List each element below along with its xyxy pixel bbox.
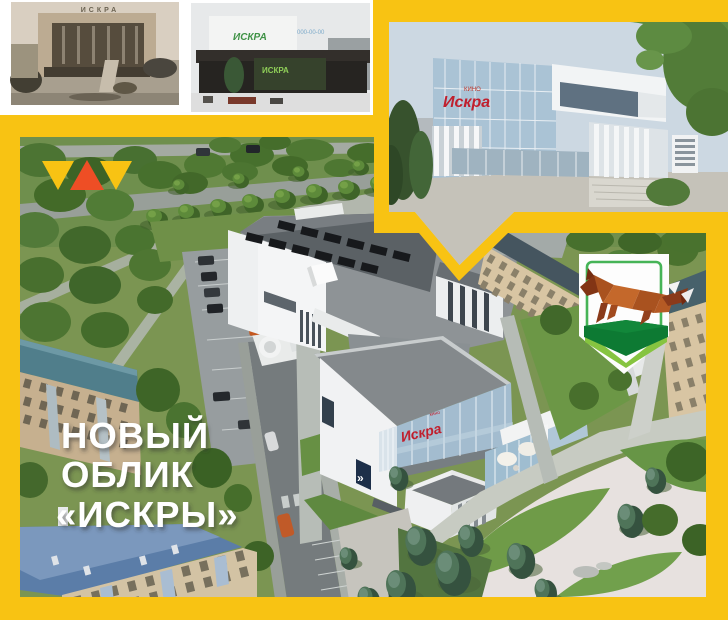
svg-text:ИСКРА: ИСКРА (262, 66, 289, 75)
svg-text:КИНО: КИНО (464, 87, 481, 93)
svg-text:НОВЫЙ: НОВЫЙ (61, 414, 209, 456)
svg-text:»: » (357, 471, 364, 485)
svg-text:«ИСКРЫ»: «ИСКРЫ» (56, 494, 239, 535)
svg-text:000-00-00: 000-00-00 (297, 30, 325, 36)
svg-text:ИСКРА: ИСКРА (233, 32, 267, 43)
svg-text:ИСКРА: ИСКРА (81, 7, 119, 14)
svg-text:Искра: Искра (443, 94, 490, 111)
svg-text:ОБЛИК: ОБЛИК (61, 454, 194, 495)
